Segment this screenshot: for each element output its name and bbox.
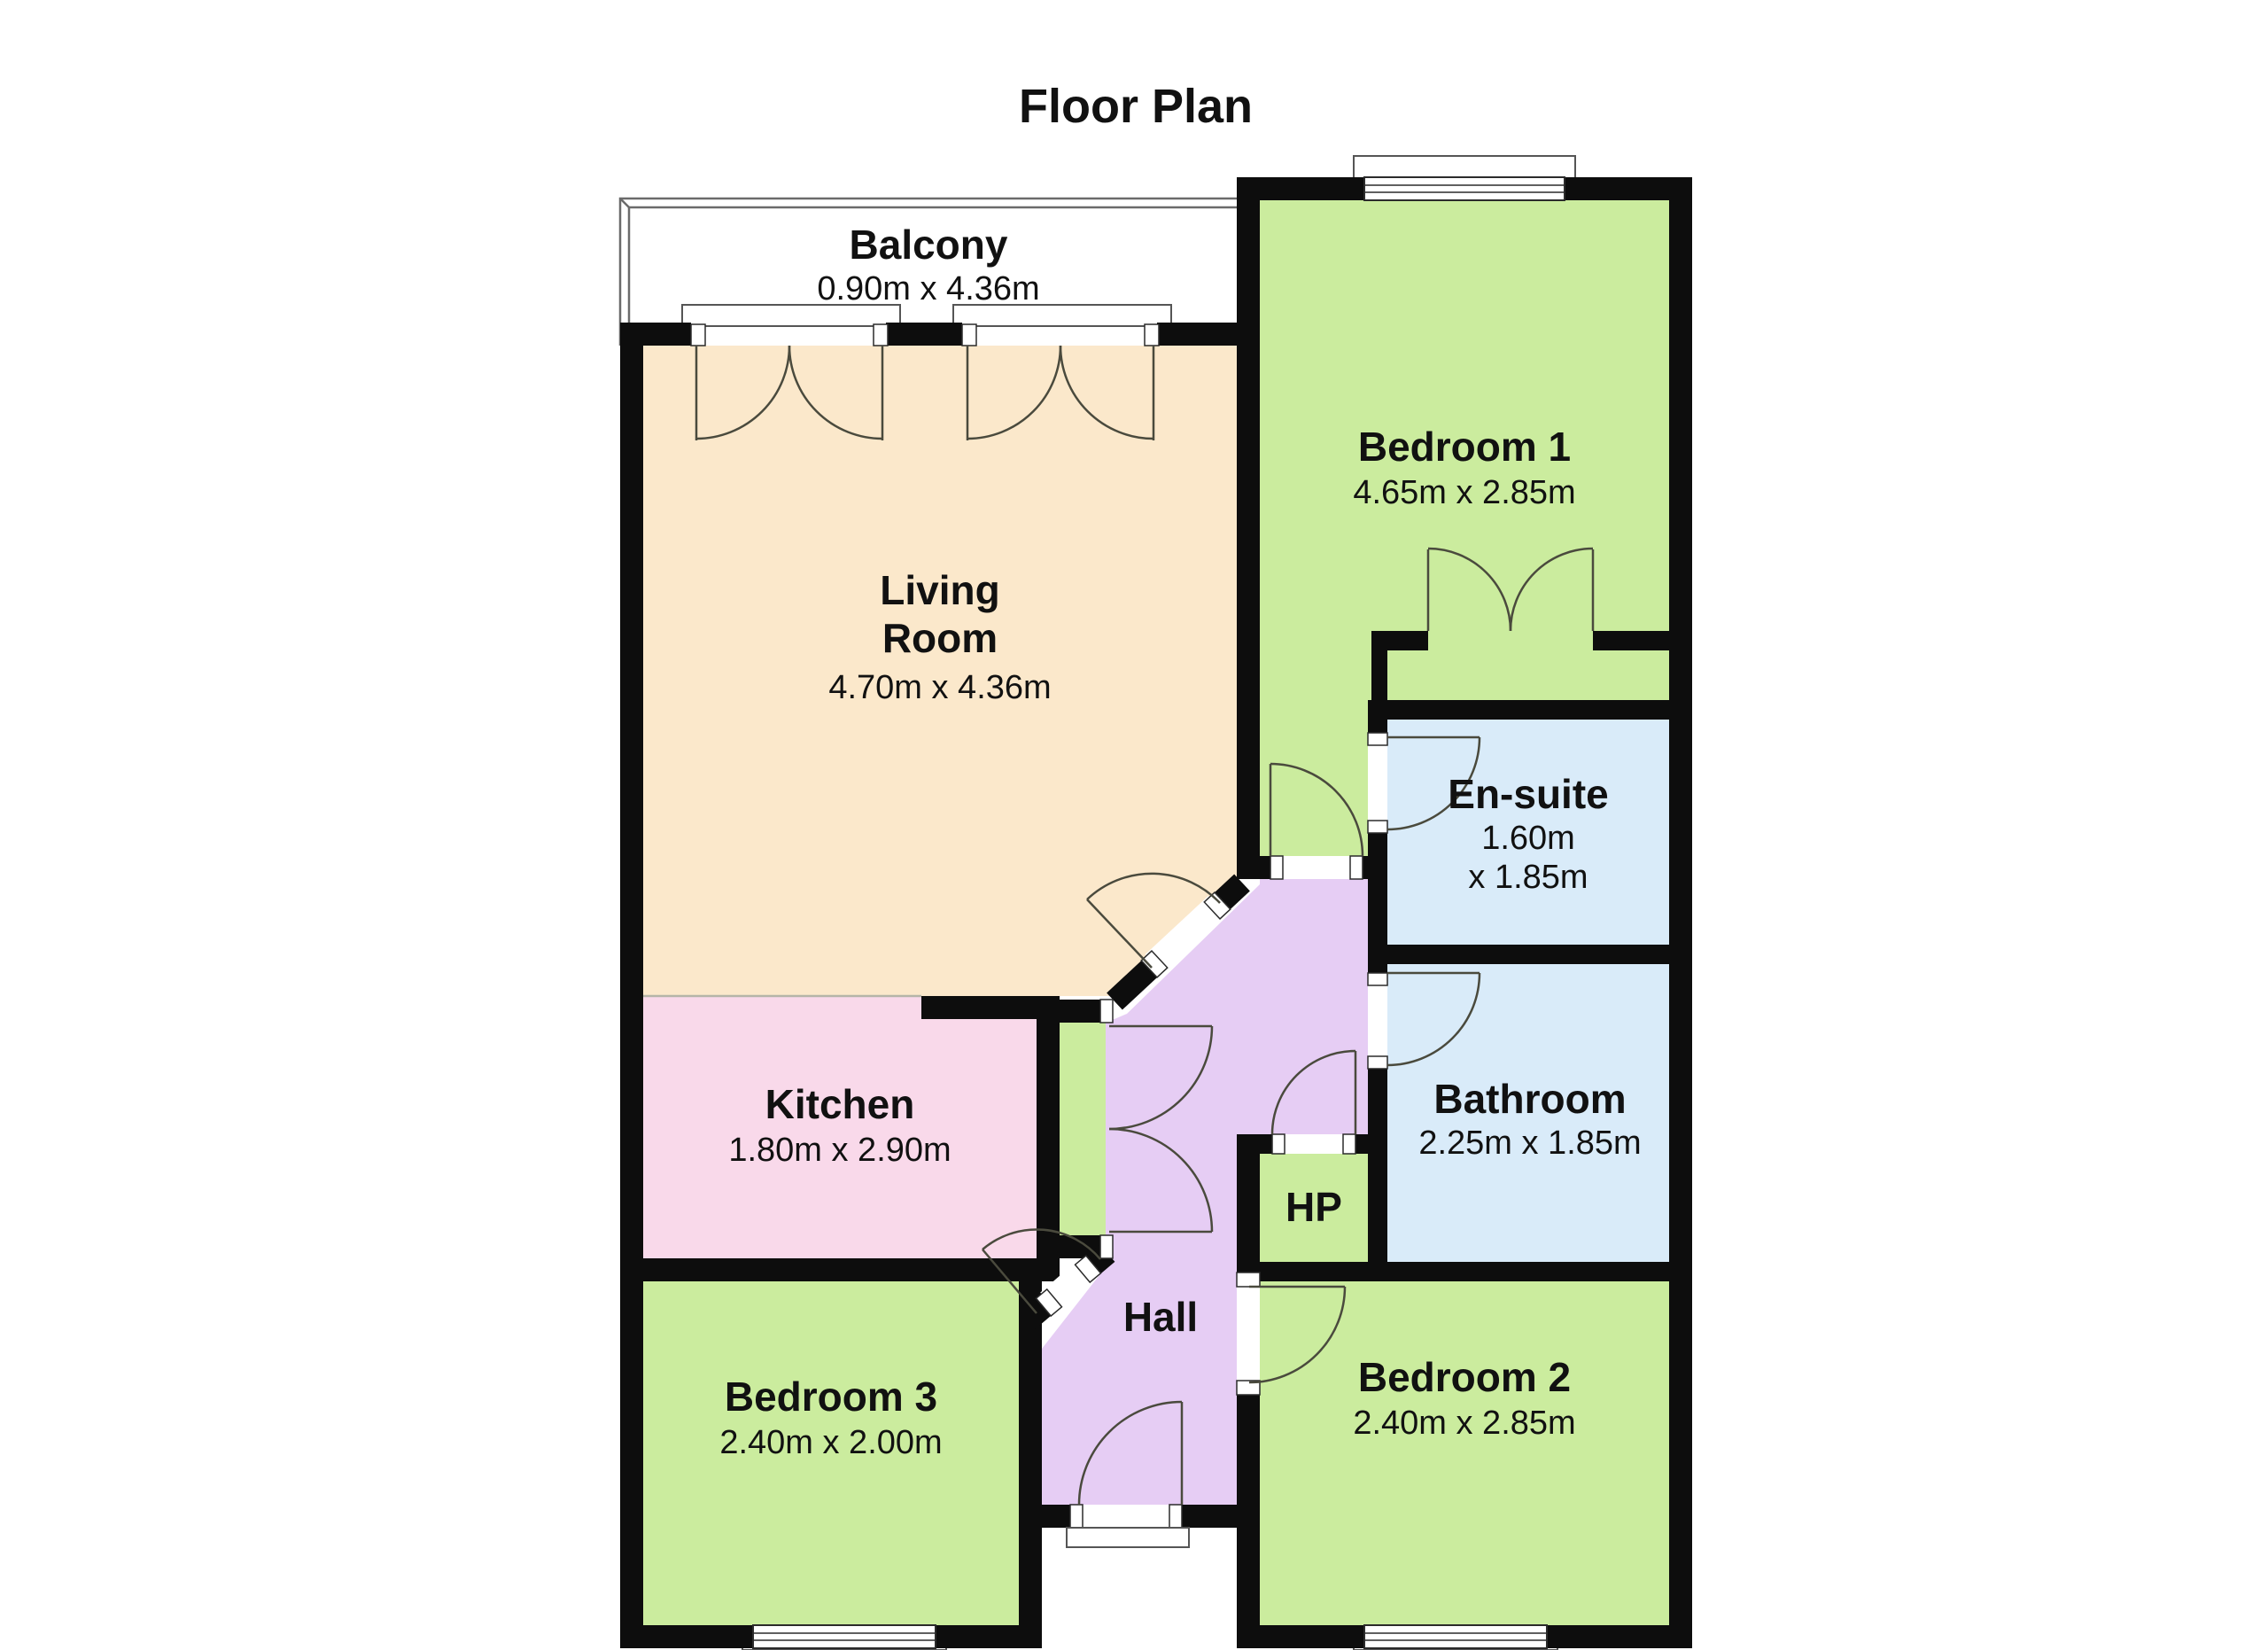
bedroom2-dims: 2.40m x 2.85m: [1353, 1405, 1575, 1442]
floor-plan: Floor Plan Balcony 0.90m x 4.36m Living …: [0, 0, 2268, 1650]
page-title: Floor Plan: [1019, 80, 1253, 133]
bedroom1-window: [1364, 177, 1565, 200]
kitchen-area: [643, 996, 1037, 1258]
kitchen-dims: 1.80m x 2.90m: [728, 1132, 951, 1169]
bedroom2-label: Bedroom 2: [1358, 1354, 1571, 1400]
bedroom3-label: Bedroom 3: [725, 1374, 937, 1420]
closet-area: [1060, 1000, 1106, 1235]
ensuite-label: En-suite: [1448, 771, 1608, 817]
ensuite-dims-1: 1.60m: [1481, 820, 1575, 857]
balcony-label: Balcony: [850, 222, 1008, 268]
hall-label: Hall: [1123, 1294, 1198, 1340]
bathroom-dims: 2.25m x 1.85m: [1418, 1125, 1641, 1162]
living-room-label-2: Room: [882, 615, 998, 661]
balcony-dims: 0.90m x 4.36m: [817, 270, 1039, 307]
hp-label: HP: [1285, 1184, 1342, 1230]
living-room-dims: 4.70m x 4.36m: [828, 669, 1051, 706]
bedroom2-area: [1260, 1281, 1669, 1625]
bedroom2-window: [1364, 1625, 1547, 1648]
entrance-threshold: [1067, 1528, 1189, 1547]
bedroom3-dims: 2.40m x 2.00m: [719, 1424, 942, 1461]
kitchen-label: Kitchen: [765, 1081, 915, 1127]
bedroom3-window: [753, 1625, 936, 1648]
bedroom1-dims: 4.65m x 2.85m: [1353, 474, 1575, 511]
living-room-label-1: Living: [880, 567, 999, 613]
bathroom-label: Bathroom: [1433, 1076, 1626, 1122]
ensuite-dims-2: x 1.85m: [1468, 859, 1588, 896]
bedroom1-label: Bedroom 1: [1358, 424, 1571, 470]
